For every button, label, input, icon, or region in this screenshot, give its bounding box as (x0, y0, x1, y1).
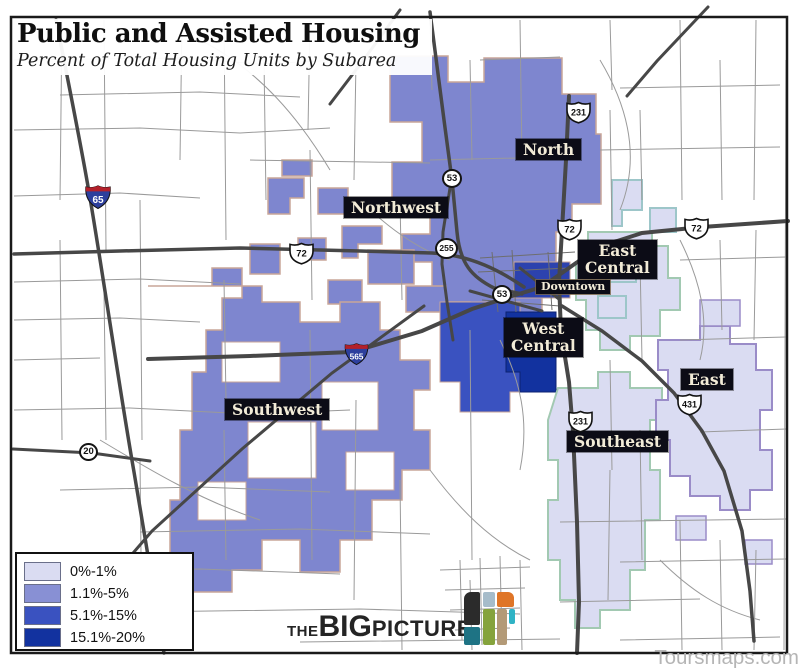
us-231-shield-south-icon: 231 (567, 410, 594, 433)
logo-picture: PICTURE (372, 616, 472, 642)
legend-label: 0%-1% (70, 564, 117, 580)
page-subtitle: Percent of Total Housing Units by Subare… (17, 51, 420, 71)
state-53-shield-north-icon: 53 (442, 169, 462, 188)
subarea-label-east-central: East Central (578, 240, 657, 279)
subarea-label-southwest: Southwest (225, 399, 329, 420)
shield-number: 255 (439, 238, 453, 259)
legend-row: 5.1%-15% (24, 605, 192, 626)
legend-row: 1.1%-5% (24, 583, 192, 604)
page-title: Public and Assisted Housing (17, 21, 420, 48)
shield-number: 53 (497, 285, 508, 304)
subarea-label-text: East (688, 370, 726, 389)
logo-the: THE (287, 623, 319, 640)
legend: 0%-1% 1.1%-5% 5.1%-15% 15.1%-20% (15, 552, 194, 651)
subarea-label-text: Downtown (541, 280, 605, 293)
state-53-shield-downtown-icon: 53 (492, 285, 512, 304)
shield-number: 231 (573, 417, 588, 427)
logo-tile-orange (497, 592, 514, 607)
legend-label: 15.1%-20% (70, 630, 145, 646)
shield-number: 72 (564, 225, 575, 236)
us-231-shield-north-icon: 231 (565, 101, 592, 124)
us-431-shield-icon: 431 (676, 393, 703, 416)
legend-swatch-0-1 (24, 562, 61, 581)
shield-number: 53 (447, 169, 458, 188)
subarea-label-text: North (523, 140, 574, 159)
subarea-label-text: West (511, 320, 576, 337)
legend-row: 15.1%-20% (24, 627, 192, 648)
shield-number: 565 (350, 352, 364, 362)
big-picture-logo-text: THEBIGPICTURE (287, 610, 472, 644)
interstate-565-shield-icon: 565 (341, 342, 372, 366)
subarea-label-text: Southeast (574, 432, 661, 451)
shield-number: 231 (571, 108, 586, 118)
legend-swatch-5-15 (24, 606, 61, 625)
subarea-label-west-central: West Central (504, 318, 583, 357)
subarea-label-text: Northwest (351, 198, 441, 217)
subarea-label-northwest: Northwest (344, 197, 448, 218)
interstate-65-shield-icon: 65 (84, 184, 112, 210)
shield-number: 65 (92, 195, 104, 206)
subarea-label-southeast: Southeast (567, 431, 668, 452)
subarea-label-text: Central (585, 259, 650, 276)
us-72-shield-mid-icon: 72 (556, 218, 583, 241)
legend-label: 1.1%-5% (70, 586, 129, 602)
subarea-label-downtown: Downtown (536, 280, 610, 294)
subarea-label-east: East (681, 369, 733, 390)
shield-number: 20 (83, 443, 94, 461)
logo-tile-tan (497, 609, 507, 645)
us-72-shield-east-icon: 72 (683, 217, 710, 240)
logo-tile-teal (464, 627, 480, 645)
shield-number: 431 (682, 400, 697, 410)
legend-row: 0%-1% (24, 561, 192, 582)
subarea-label-north: North (516, 139, 581, 160)
shield-number: 72 (691, 224, 702, 235)
legend-swatch-1-5 (24, 584, 61, 603)
logo-tile-green (483, 609, 495, 645)
legend-swatch-15-20 (24, 628, 61, 647)
subarea-label-text: Southwest (232, 400, 322, 419)
logo-tile-steel (483, 592, 495, 607)
toursmaps-watermark[interactable]: Toursmaps.com (654, 646, 799, 670)
state-255-shield-icon: 255 (435, 238, 458, 259)
subarea-label-text: East (585, 242, 650, 259)
subarea-label-text: Central (511, 337, 576, 354)
big-picture-logo-icon (464, 592, 515, 645)
shield-number: 72 (296, 249, 307, 260)
logo-tile-cyan (509, 609, 515, 624)
us-72-shield-west-icon: 72 (288, 242, 315, 265)
state-20-shield-icon: 20 (79, 443, 98, 461)
title-block: Public and Assisted Housing Percent of T… (13, 19, 432, 75)
logo-tile-black (464, 592, 480, 625)
legend-label: 5.1%-15% (70, 608, 137, 624)
logo-big: BIG (319, 610, 372, 644)
